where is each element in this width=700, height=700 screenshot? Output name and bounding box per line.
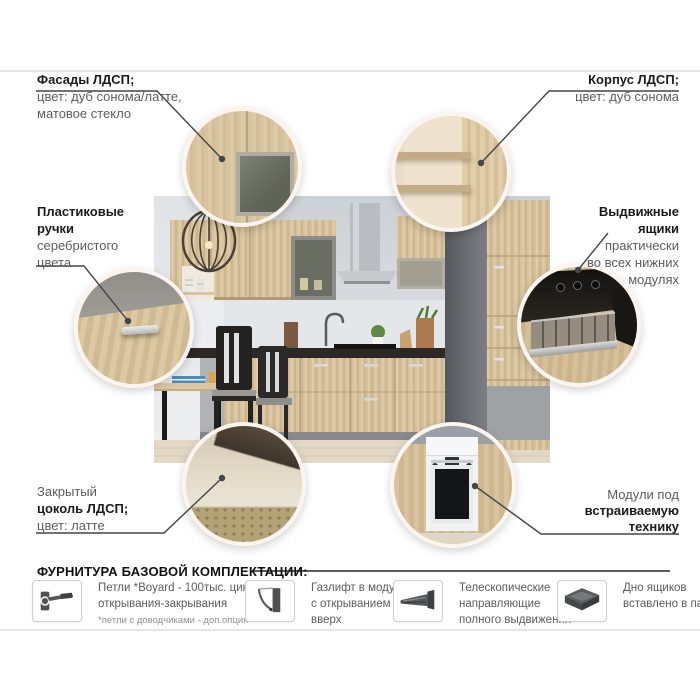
callout-line: модулях <box>519 271 679 288</box>
callout-line: Закрытый <box>37 483 197 500</box>
silver-handle <box>120 324 158 335</box>
kitchen-infographic: Фасады ЛДСП; цвет: дуб сонома/латте, мат… <box>0 0 700 700</box>
callout-facades-text: Фасады ЛДСП; цвет: дуб сонома/латте, мат… <box>37 71 247 122</box>
oven-control-panel <box>426 437 478 457</box>
facades-detail-circle <box>182 107 302 227</box>
callout-drawers-text: Выдвижные ящики практически во всех нижн… <box>519 203 679 288</box>
callout-title: технику <box>519 519 679 535</box>
countertop <box>154 348 445 358</box>
callout-line: цвета <box>37 254 187 271</box>
callout-title: встраиваемую <box>519 503 679 519</box>
callout-title: цоколь ЛДСП; <box>37 500 197 517</box>
kitchen-scene <box>154 196 550 463</box>
callout-plinth-text: Закрытый цоколь ЛДСП; цвет: латте <box>37 483 197 534</box>
plant-pot <box>371 325 385 347</box>
builtin-oven-circle <box>390 422 516 548</box>
callout-title: Фасады ЛДСП; <box>37 71 247 88</box>
callout-line: цвет: латте <box>37 517 197 534</box>
callout-line: Модули под <box>519 487 679 503</box>
hardware-item-text: Дно ящиков вставлено в паз <box>623 580 700 612</box>
callout-title: Пластиковые <box>37 203 187 220</box>
drawer-bottom-icon <box>557 580 607 622</box>
callout-line: матовое стекло <box>37 105 247 122</box>
callout-builtin-text: Модули под встраиваемую технику <box>519 487 679 535</box>
matte-glass-panel <box>236 152 293 216</box>
floor-band <box>394 533 512 544</box>
cabinet-side <box>462 116 507 228</box>
background-blur <box>74 268 194 334</box>
callout-carcass-text: Корпус ЛДСП; цвет: дуб сонома <box>478 71 679 105</box>
callout-line: во всех нижних <box>519 254 679 271</box>
callout-line: серебристого <box>37 237 187 254</box>
callout-line: цвет: дуб сонома/латте, <box>37 88 247 105</box>
callout-title: Корпус ЛДСП; <box>478 71 679 88</box>
bottom-divider <box>0 629 700 631</box>
oven-door <box>431 465 473 524</box>
hardware-item-drawer-bottom: Дно ящиков вставлено в паз <box>557 580 700 622</box>
callout-title: ящики <box>519 220 679 237</box>
handle-detail-circle <box>74 268 194 388</box>
shelf <box>395 152 471 159</box>
hardware-line: вставлено в паз <box>623 596 700 612</box>
callout-title: Выдвижные <box>519 203 679 220</box>
glass-cabinet <box>291 220 336 300</box>
callout-line: практически <box>519 237 679 254</box>
carpet <box>186 507 302 542</box>
hardware-section-title: ФУРНИТУРА БАЗОВОЙ КОМПЛЕКТАЦИИ: <box>37 564 308 579</box>
callout-line: цвет: дуб сонома <box>478 88 679 105</box>
plinth-detail-circle <box>182 422 306 546</box>
callout-handles-text: Пластиковые ручки серебристого цвета <box>37 203 187 271</box>
oven-handle <box>431 460 473 463</box>
callout-title: ручки <box>37 220 187 237</box>
decor-box <box>284 322 298 348</box>
kitchen-photo <box>154 196 550 463</box>
carcass-detail-circle <box>391 112 511 232</box>
hob <box>334 344 396 349</box>
shelf <box>395 185 471 192</box>
telescopic-rails-icon <box>393 580 443 622</box>
hinge-icon <box>32 580 82 622</box>
hardware-line: Дно ящиков <box>623 580 700 596</box>
built-in-oven <box>426 437 478 531</box>
hardware-item-hinges: Петли *Boyard - 100тыс. циклов открывани… <box>32 580 270 627</box>
tall-gray-column <box>445 196 487 440</box>
gas-lift-icon <box>245 580 295 622</box>
cabinet-back <box>404 116 467 228</box>
